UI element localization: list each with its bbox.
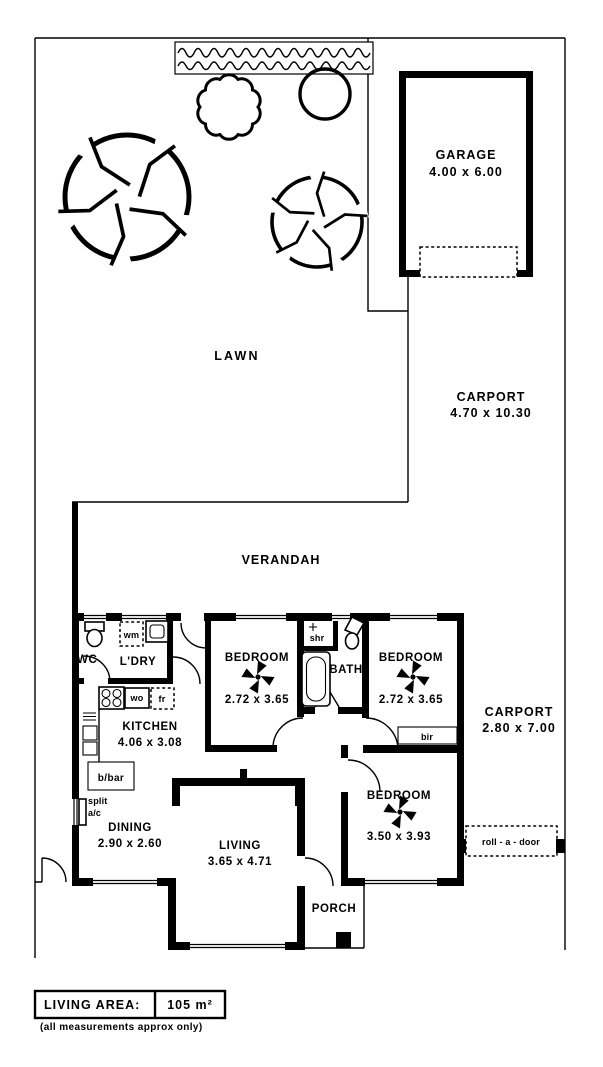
- window: [236, 613, 286, 621]
- window: [390, 613, 437, 621]
- roll-a-door: roll - a - door: [457, 826, 565, 856]
- bedroom2-label: BEDROOM: [379, 652, 443, 664]
- floor-plan: GARAGE 4.00 x 6.00 LAWN CARPORT 4.70 x 1…: [0, 0, 603, 1067]
- window: [93, 878, 157, 886]
- fr-label: fr: [159, 694, 166, 704]
- legend: LIVING AREA: 105 m² (all measurements ap…: [35, 991, 225, 1033]
- tree-round-icon: [300, 69, 350, 119]
- bath-label: BATH: [329, 664, 363, 676]
- kitchen-label: KITCHEN: [122, 721, 177, 733]
- bedroom2-dims: 2.72 x 3.65: [379, 694, 443, 706]
- porch: PORCH: [305, 886, 364, 948]
- verandah-wall: [72, 502, 78, 615]
- tree-large-icon: [56, 132, 196, 269]
- bedroom1-dims: 2.72 x 3.65: [225, 694, 289, 706]
- carport-side-label: CARPORT: [485, 705, 554, 719]
- toilet-icon: [85, 622, 104, 647]
- shower-rose-icon: [309, 623, 317, 631]
- wo-label: wo: [130, 693, 144, 703]
- porch-label: PORCH: [312, 903, 357, 915]
- carport-rear-dims: 4.70 x 10.30: [450, 406, 532, 420]
- carport-rear-label: CARPORT: [457, 390, 526, 404]
- split-ac-unit: [79, 799, 86, 825]
- front-door-arc: [305, 858, 333, 886]
- roll-a-door-label: roll - a - door: [482, 837, 540, 847]
- kitchen-vent: [83, 713, 96, 720]
- shr-label: shr: [310, 633, 325, 643]
- bedroom1-label: BEDROOM: [225, 652, 289, 664]
- carport-side-dims: 2.80 x 7.00: [482, 721, 556, 735]
- tree-medium-icon: [244, 153, 385, 294]
- living-area-value: 105 m²: [167, 998, 213, 1012]
- bir-label: bir: [421, 732, 433, 742]
- bbar-label: b/bar: [98, 773, 124, 784]
- ac-label: a/c: [88, 808, 101, 818]
- tree-scalloped-icon: [198, 75, 260, 140]
- window: [84, 613, 106, 621]
- garage-dims: 4.00 x 6.00: [429, 165, 503, 179]
- living-label: LIVING: [219, 840, 261, 852]
- floor-plan-page: GARAGE 4.00 x 6.00 LAWN CARPORT 4.70 x 1…: [0, 0, 603, 1067]
- kitchen-dims: 4.06 x 3.08: [118, 737, 182, 749]
- window: [122, 613, 166, 621]
- laundry-label: L'DRY: [120, 656, 157, 668]
- bedroom1-door-arc: [273, 718, 303, 748]
- bedroom3-door-arc: [348, 760, 380, 792]
- lawn-label: LAWN: [214, 349, 260, 363]
- stove-icon: [99, 687, 124, 709]
- window-side: [72, 799, 79, 825]
- bathtub-icon: [302, 652, 330, 706]
- living-dims: 3.65 x 4.71: [208, 856, 272, 868]
- window: [190, 942, 285, 950]
- bedroom3-label: BEDROOM: [367, 790, 431, 802]
- verandah-label: VERANDAH: [242, 553, 321, 567]
- wm-label: wm: [123, 630, 139, 640]
- wc-label: WC: [77, 654, 97, 666]
- back-door-arc: [181, 623, 206, 648]
- living-area-label: LIVING AREA:: [44, 998, 140, 1012]
- laundry-door-arc: [173, 657, 200, 684]
- porch-post: [336, 932, 351, 948]
- window: [365, 878, 437, 886]
- bath-toilet-icon: [345, 617, 364, 649]
- garage: GARAGE 4.00 x 6.00: [399, 71, 533, 277]
- laundry-trough-icon: [146, 621, 168, 642]
- garage-label: GARAGE: [436, 148, 497, 162]
- hedge: [175, 42, 373, 74]
- measurements-note: (all measurements approx only): [40, 1022, 203, 1033]
- window: [332, 613, 350, 621]
- dining-label: DINING: [108, 822, 152, 834]
- split-label: split: [88, 796, 108, 806]
- gate-arc: [35, 858, 66, 882]
- bedroom3-dims: 3.50 x 3.93: [367, 831, 431, 843]
- dining-dims: 2.90 x 2.60: [98, 838, 162, 850]
